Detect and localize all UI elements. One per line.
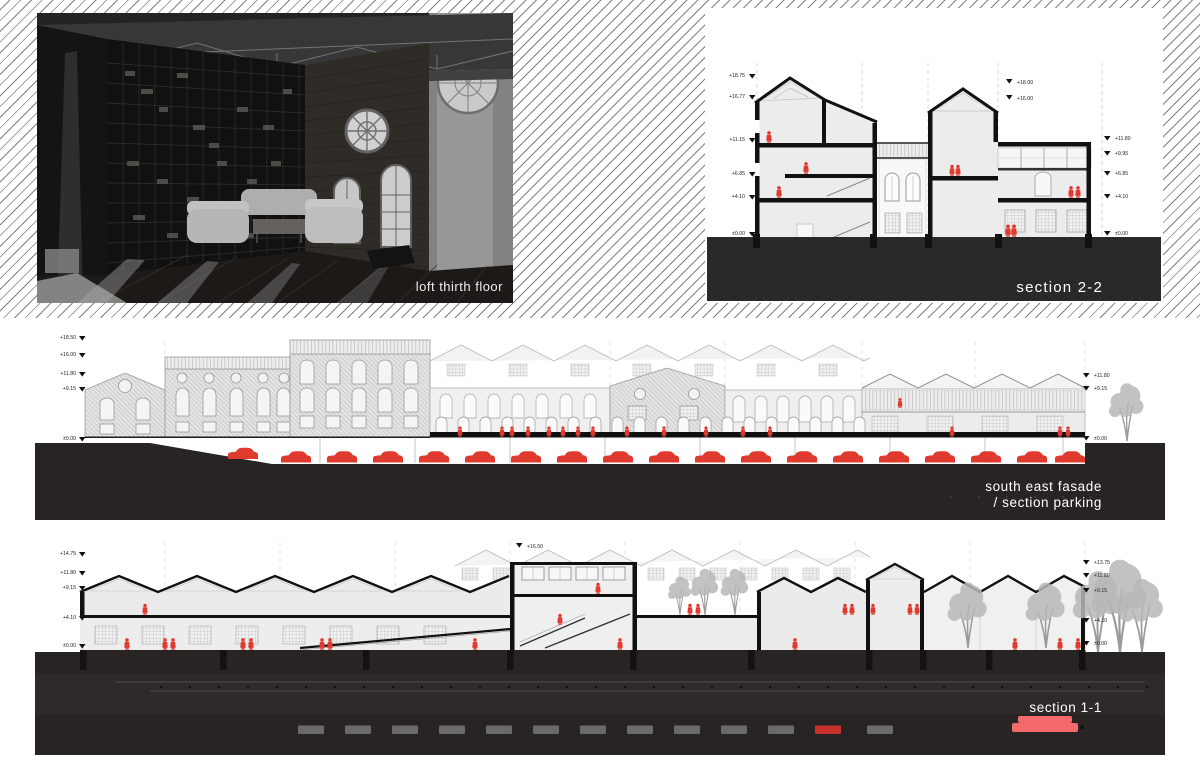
level-label: +11.80 [60, 371, 76, 377]
background-facade [877, 142, 928, 240]
level-label: +4.10 [732, 194, 745, 200]
level-label: +6.85 [1115, 171, 1128, 177]
level-label: ±0.00 [1094, 641, 1107, 647]
level-label: +9.15 [1094, 588, 1107, 594]
section-2-2-label: section 2-2 [1016, 279, 1103, 296]
level-label: ±0.00 [1094, 436, 1107, 442]
stair-tower [510, 562, 637, 650]
level-label: ±0.00 [1115, 231, 1128, 237]
tree [1109, 383, 1144, 441]
level-label: +9.15 [63, 386, 76, 392]
facade-label-line2: / section parking [993, 495, 1102, 510]
level-label: +16.50 [527, 544, 543, 550]
ground-parking-band [35, 650, 1165, 755]
level-label: +11.80 [1094, 373, 1110, 379]
loft-interior-rendering [37, 13, 513, 303]
loft-interior-photo: loft thirth floor [37, 13, 513, 303]
level-label: +16.00 [1017, 96, 1033, 102]
section-1-1-drawing: +14.75 +11.80 +9.15 +4.10 ±0.00 +16.50 +… [0, 536, 1200, 761]
historic-tall-block [290, 340, 430, 437]
level-marker-top: +16.50 [516, 543, 543, 550]
section-2-2-drawing: +18.75 +16.77 +11.15 +6.85 +4.10 ±0.00 +… [705, 8, 1163, 303]
historic-gable-block [85, 373, 165, 437]
section-1-1-label: section 1-1 [1029, 700, 1102, 715]
level-markers-left: +18.50 +16.00 +11.80 +9.15 ±0.00 [60, 335, 86, 442]
level-markers-right: +11.80 +9.15 ±0.00 [1083, 373, 1110, 442]
level-label: ±0.00 [63, 436, 76, 442]
level-label: +18.00 [1017, 80, 1033, 86]
level-label: +13.75 [1094, 560, 1110, 566]
level-label: +16.77 [729, 94, 745, 100]
historic-mid-block [165, 357, 290, 437]
level-label: +18.75 [729, 73, 745, 79]
section-2-2-panel: +18.75 +16.77 +11.15 +6.85 +4.10 ±0.00 +… [705, 8, 1163, 303]
level-label: ±0.00 [732, 231, 745, 237]
right-sawtooth-section [757, 578, 866, 650]
level-label: ±0.00 [63, 643, 76, 649]
level-label: +14.75 [60, 551, 76, 557]
level-label: +11.80 [60, 570, 76, 576]
level-label: +16.00 [60, 352, 76, 358]
highlighted-car [815, 726, 841, 735]
presentation-board: loft thirth floor [0, 0, 1200, 771]
background-sawtooth [430, 345, 870, 376]
car-row [228, 448, 1085, 463]
arched-facade [430, 388, 610, 437]
tall-gable [866, 564, 924, 650]
level-label: +4.10 [63, 615, 76, 621]
south-east-facade-panel: +18.50 +16.00 +11.80 +9.15 ±0.00 +11.80 … [0, 328, 1200, 528]
level-label: +4.10 [1115, 194, 1128, 200]
level-label: +9.95 [1115, 151, 1128, 157]
level-label: +9.15 [1094, 386, 1107, 392]
facade-drawing: +18.50 +16.00 +11.80 +9.15 ±0.00 +11.80 … [0, 328, 1200, 528]
modern-sheds [862, 374, 1085, 437]
photo-caption: loft thirth floor [416, 279, 503, 294]
level-label: +11.80 [1094, 573, 1110, 579]
level-label: +4.10 [1094, 618, 1107, 624]
section-1-1-panel: +14.75 +11.80 +9.15 +4.10 ±0.00 +16.50 +… [0, 536, 1200, 761]
level-label: +9.15 [63, 585, 76, 591]
level-label: +11.15 [729, 137, 745, 143]
level-label: +6.85 [732, 171, 745, 177]
facade-label-line1: south east fasade [985, 479, 1102, 494]
level-label: +11.80 [1115, 136, 1131, 142]
level-label: +18.50 [60, 335, 76, 341]
